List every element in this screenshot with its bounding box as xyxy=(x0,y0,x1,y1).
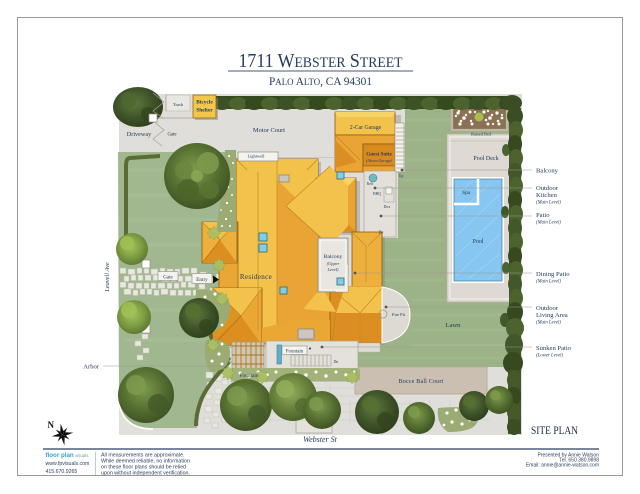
svg-text:Entry: Entry xyxy=(196,277,208,283)
svg-text:2-Car Garage: 2-Car Garage xyxy=(350,125,382,131)
svg-text:SITE PLAN: SITE PLAN xyxy=(531,425,579,437)
svg-text:Sunken Patio: Sunken Patio xyxy=(536,345,572,352)
svg-text:upon without independent verif: upon without independent verification. xyxy=(101,471,190,477)
svg-text:Level): Level) xyxy=(327,267,340,272)
svg-text:Dn: Dn xyxy=(379,231,384,235)
svg-text:Fire Pit: Fire Pit xyxy=(392,312,406,317)
svg-text:Gate: Gate xyxy=(167,133,176,138)
svg-text:(Lower Level): (Lower Level) xyxy=(536,354,563,359)
svg-text:Email: annie@annie-watson.com: Email: annie@annie-watson.com xyxy=(526,463,599,469)
svg-text:Living Area: Living Area xyxy=(536,312,568,319)
svg-text:Arbor: Arbor xyxy=(83,364,100,371)
svg-text:Driveway: Driveway xyxy=(127,131,152,138)
svg-text:(Above Garage): (Above Garage) xyxy=(366,158,393,163)
svg-text:Motor Court: Motor Court xyxy=(253,127,285,134)
svg-text:Kitchen: Kitchen xyxy=(536,192,558,199)
svg-text:Fountain: Fountain xyxy=(286,350,304,355)
svg-text:Guest Suite: Guest Suite xyxy=(366,152,392,158)
svg-text:Pool: Pool xyxy=(472,239,483,245)
svg-text:BBQ: BBQ xyxy=(373,192,381,196)
svg-text:(Upper: (Upper xyxy=(327,261,340,266)
svg-text:Outdoor: Outdoor xyxy=(536,305,559,312)
svg-text:Balcony: Balcony xyxy=(536,168,559,175)
svg-text:Bicycle: Bicycle xyxy=(196,100,213,106)
svg-text:Lightwell: Lightwell xyxy=(247,154,265,159)
svg-text:Spa: Spa xyxy=(462,190,471,196)
svg-text:415.670.9265: 415.670.9265 xyxy=(46,469,78,475)
svg-text:1711 WEBSTER STREET: 1711 WEBSTER STREET xyxy=(239,51,403,72)
svg-text:(Main Level): (Main Level) xyxy=(536,321,561,326)
svg-text:N: N xyxy=(48,420,55,430)
svg-text:Trash: Trash xyxy=(173,102,184,107)
svg-text:Pool Deck: Pool Deck xyxy=(473,156,498,162)
svg-text:Up: Up xyxy=(399,174,404,178)
svg-text:Balcony: Balcony xyxy=(324,254,343,260)
svg-text:www.fpvisuals.com: www.fpvisuals.com xyxy=(46,461,90,467)
svg-text:Shelter: Shelter xyxy=(196,108,213,114)
svg-text:Dn: Dn xyxy=(334,360,339,364)
svg-text:Webster St: Webster St xyxy=(303,435,337,444)
svg-text:Patio: Patio xyxy=(536,212,550,219)
svg-text:floor plan: floor plan xyxy=(46,452,74,459)
svg-text:(Main Level): (Main Level) xyxy=(536,280,561,285)
svg-text:Raised Bed: Raised Bed xyxy=(471,132,492,137)
svg-text:Bocce Ball Court: Bocce Ball Court xyxy=(399,379,444,385)
svg-text:Residence: Residence xyxy=(240,273,272,281)
svg-text:Leavell Ave: Leavell Ave xyxy=(104,262,111,293)
svg-text:Dining Patio: Dining Patio xyxy=(536,271,570,278)
svg-text:(Main Level): (Main Level) xyxy=(536,221,561,226)
svg-text:Dws: Dws xyxy=(384,205,391,209)
svg-text:(Main Level): (Main Level) xyxy=(536,201,561,206)
svg-text:Fountain: Fountain xyxy=(239,373,258,379)
svg-text:Outdoor: Outdoor xyxy=(536,185,559,192)
svg-text:PALO ALTO, CA 94301: PALO ALTO, CA 94301 xyxy=(269,76,372,88)
svg-text:Lawn: Lawn xyxy=(446,322,462,329)
svg-text:Gate: Gate xyxy=(163,276,173,281)
svg-text:Refr: Refr xyxy=(367,182,374,186)
svg-text:visuals: visuals xyxy=(75,453,89,458)
